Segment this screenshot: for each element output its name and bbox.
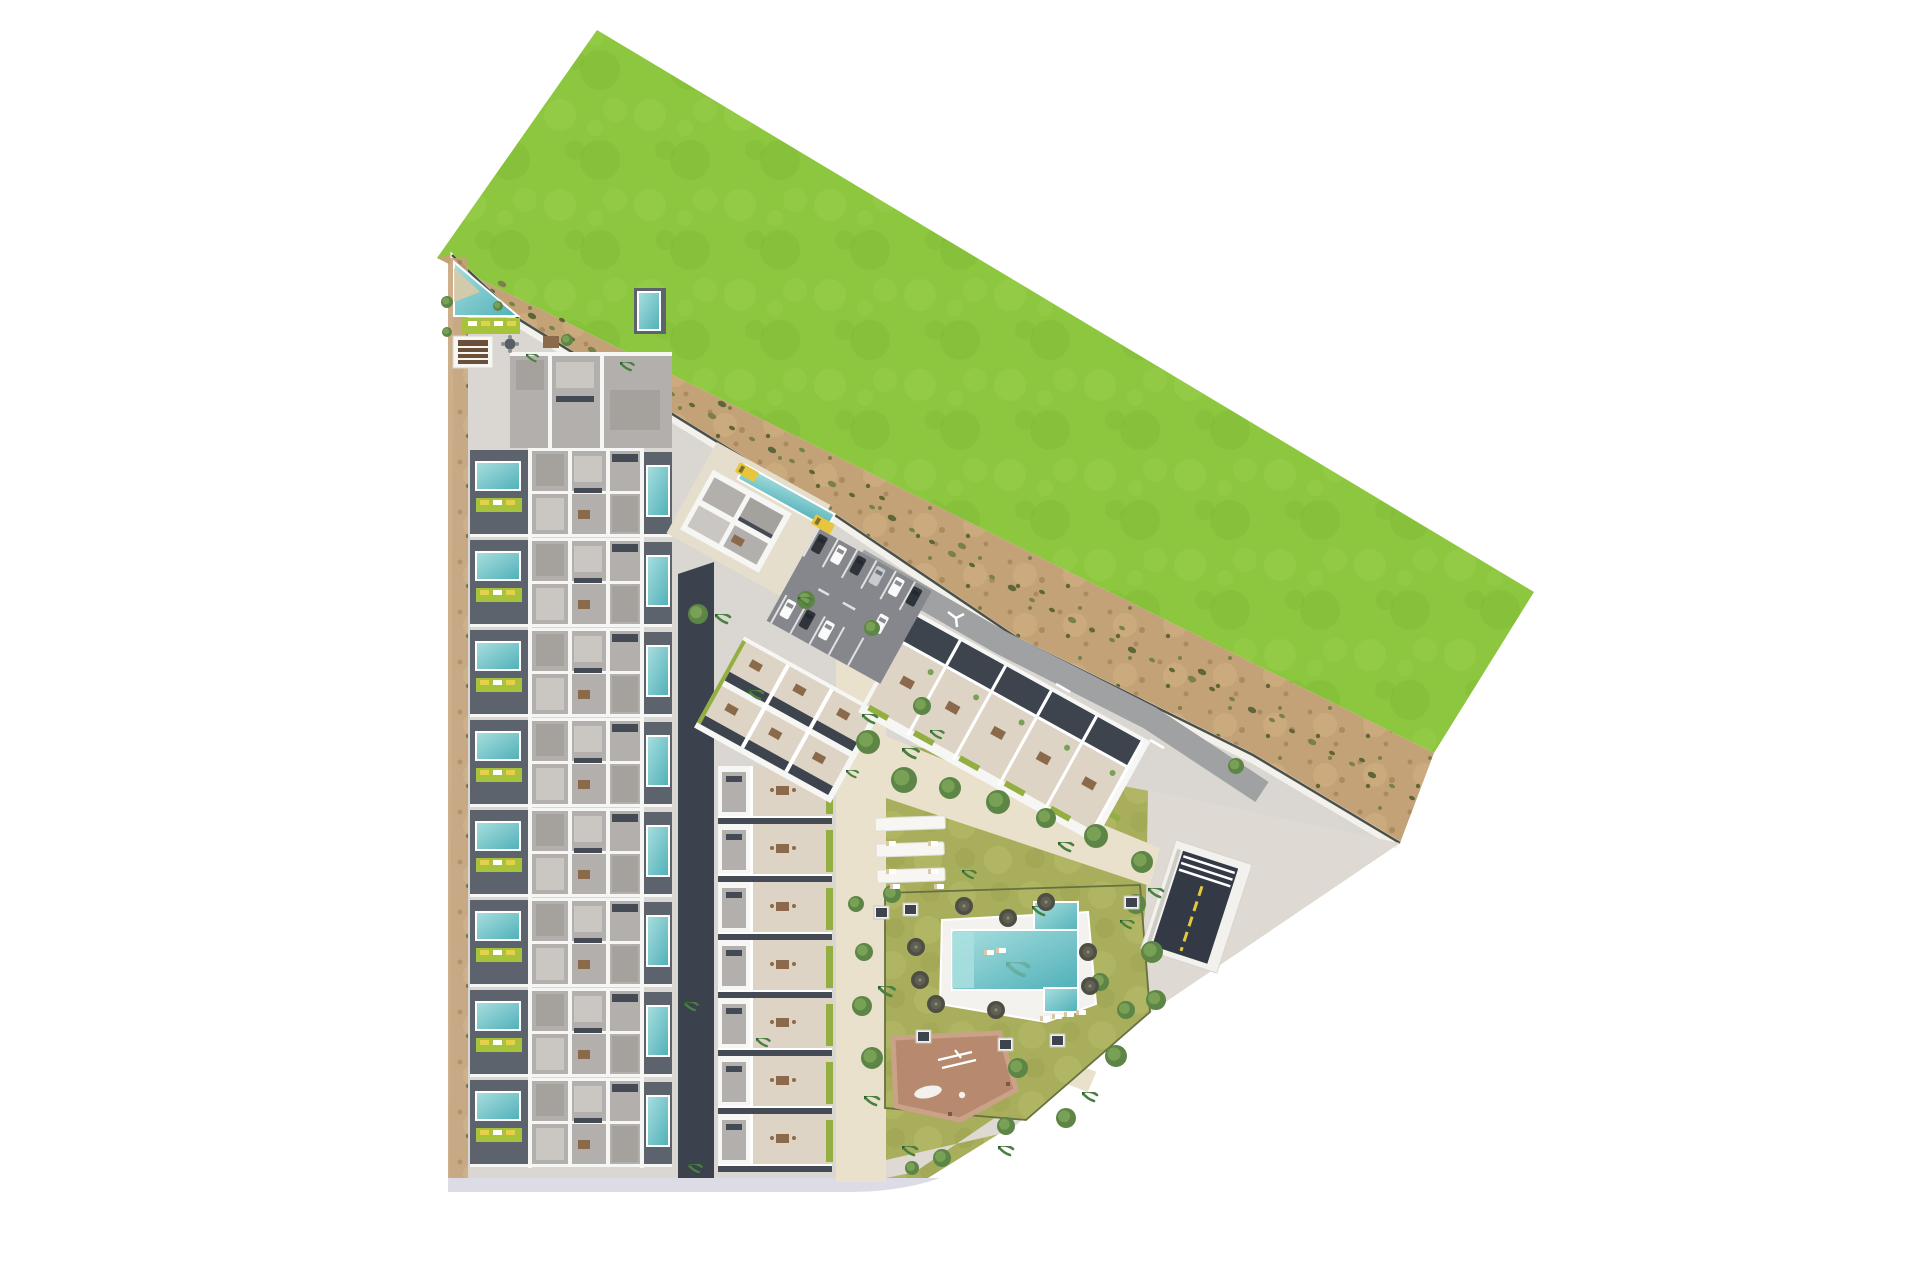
tree-icon xyxy=(442,327,452,337)
garden-apartment-unit xyxy=(718,1056,833,1114)
kiosk-icon xyxy=(1124,896,1139,909)
umbrella-icon xyxy=(987,1001,1005,1019)
sun-lounger-icon xyxy=(996,948,1006,953)
umbrella-icon xyxy=(1037,893,1055,911)
tree-icon xyxy=(441,296,453,308)
swimming-pool xyxy=(940,902,1096,1022)
pool-beach-entry xyxy=(952,932,974,988)
sun-lounger-icon xyxy=(928,841,938,846)
tree-icon xyxy=(986,790,1010,814)
tree-icon xyxy=(688,604,708,624)
tree-icon xyxy=(939,777,961,799)
central-alley xyxy=(678,562,714,1178)
sun-lounger-icon xyxy=(886,869,896,874)
tree-icon xyxy=(561,334,573,346)
sun-lounger-icon xyxy=(886,841,896,846)
tree-icon xyxy=(1228,758,1244,774)
sun-lounger-icon xyxy=(928,869,938,874)
tree-icon xyxy=(493,301,503,311)
sun-lounger-icon xyxy=(1052,1014,1062,1019)
kiosk-icon xyxy=(874,906,889,919)
garden-apartment-unit xyxy=(718,882,833,940)
pergola xyxy=(453,336,493,368)
tree-icon xyxy=(1131,851,1153,873)
townhouse-row xyxy=(470,808,672,898)
tree-icon xyxy=(1117,1001,1135,1019)
umbrella-icon xyxy=(907,938,925,956)
garden-apartment-unit xyxy=(718,1114,833,1172)
townhouse-row xyxy=(470,1078,672,1168)
garden-apartment-unit xyxy=(718,940,833,998)
townhouse-row xyxy=(470,718,672,808)
kiosk-icon xyxy=(1050,1034,1065,1047)
tree-icon xyxy=(913,697,931,715)
garden-apartments-strip xyxy=(718,766,833,1172)
garden-apartment-unit xyxy=(718,824,833,882)
tree-icon xyxy=(1008,1058,1028,1078)
tree-icon xyxy=(848,896,864,912)
townhouse-row xyxy=(470,988,672,1078)
spring-rider-icon xyxy=(959,1092,965,1098)
tree-icon xyxy=(891,767,917,793)
site-plan-rendering xyxy=(0,0,1920,1280)
tree-icon xyxy=(1036,808,1056,828)
townhouse-row xyxy=(470,628,672,718)
townhouse-row xyxy=(470,538,672,628)
umbrella-icon xyxy=(911,971,929,989)
tree-icon xyxy=(1056,1108,1076,1128)
tree-icon xyxy=(933,1149,951,1167)
kiosk-icon xyxy=(998,1038,1013,1051)
tree-icon xyxy=(852,996,872,1016)
sun-lounger-icon xyxy=(890,884,900,889)
tree-icon xyxy=(1146,990,1166,1010)
left-service-lane xyxy=(448,258,468,1180)
tree-icon xyxy=(905,1161,919,1175)
tree-icon xyxy=(997,1117,1015,1135)
tree-icon xyxy=(856,730,880,754)
tree-icon xyxy=(855,943,873,961)
kiosk-icon xyxy=(903,903,918,916)
tree-icon xyxy=(861,1047,883,1069)
townhouse-row xyxy=(470,898,672,988)
tree-icon xyxy=(1141,941,1163,963)
umbrella-icon xyxy=(999,909,1017,927)
sun-lounger-icon xyxy=(1040,1016,1050,1021)
sun-lounger-icon xyxy=(1076,1010,1086,1015)
site-plan-page xyxy=(0,0,1920,1280)
kiosk-icon xyxy=(916,1030,931,1043)
townhouse-row xyxy=(470,448,672,538)
garden-apartment-unit xyxy=(718,998,833,1056)
umbrella-icon xyxy=(1079,943,1097,961)
tree-icon xyxy=(1084,824,1108,848)
tree-icon xyxy=(1105,1045,1127,1067)
sun-lounger-icon xyxy=(984,950,994,955)
tree-icon xyxy=(864,620,880,636)
umbrella-icon xyxy=(927,995,945,1013)
sun-lounger-icon xyxy=(934,884,944,889)
sun-lounger-icon xyxy=(1064,1012,1074,1017)
umbrella-icon xyxy=(1081,977,1099,995)
umbrella-icon xyxy=(955,897,973,915)
